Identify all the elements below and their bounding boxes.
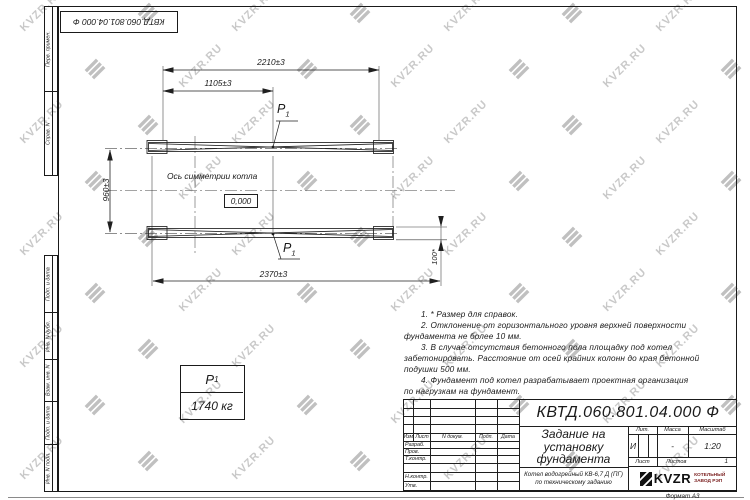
title-block-title: Задание на установку фундамента [521, 427, 626, 467]
title-block-product: Котел водогрейный КВ-6,7 Д (ПГ) по техни… [520, 468, 627, 490]
load-table-symbol: P1 [181, 367, 243, 391]
col-header-list: Лист [414, 433, 430, 441]
row-label-nkontr: Н.контр. [405, 474, 431, 480]
col-header-izm: Изм. [404, 433, 414, 441]
dim-100-label: 100* [429, 240, 439, 274]
sheets-value: 1 [724, 458, 728, 465]
mass-header: Масса [657, 426, 688, 434]
row-label-tkontr: Т.контр. [405, 456, 431, 462]
scale-header: Масштаб [688, 426, 737, 434]
title-block-doc-number: КВТД.060.801.04.000 Ф [519, 399, 737, 426]
note-item: 2. Отклонение от горизонтального уровня … [404, 320, 732, 342]
note-item: 4. Фундамент под котел разрабатывает про… [404, 375, 732, 397]
lit-value: И [628, 434, 638, 457]
notes-block: 1. * Размер для справок. 2. Отклонение о… [404, 309, 732, 397]
load-table-value: 1740 кг [181, 394, 243, 417]
format-label: Формат А3 [628, 492, 737, 500]
sheets-cell: Листов 1 [657, 457, 737, 466]
foundation-beam-top [147, 141, 394, 154]
row-label-prov: Пров. [405, 449, 431, 455]
load-point-label-bottom: P1 [283, 241, 296, 258]
dim-2210-label: 2210±3 [236, 56, 306, 67]
sheets-label: Листов [666, 459, 686, 465]
col-header-podp: Подп. [475, 433, 497, 441]
row-label-utv: Утв. [405, 483, 431, 489]
level-mark-box: 0,000 [224, 194, 258, 208]
drawing-sheet: KVZR.RUKVZR.RUKVZR.RUKVZR.RUKVZR.RUKVZR.… [0, 0, 750, 500]
axis-of-symmetry-label: Ось симметрии котла [167, 171, 277, 183]
level-mark-value: 0,000 [231, 197, 252, 206]
scale-value: 1:20 [688, 434, 737, 457]
kvzr-logo-icon [640, 472, 652, 486]
dim-960-label: 960±3 [101, 170, 111, 210]
sheet-cell: Лист [628, 457, 657, 466]
load-table: P1 1740 кг [180, 365, 245, 420]
note-item: 3. В случае отсутствия бетонного пола пл… [404, 342, 732, 375]
company-logo-text: KVZR [654, 471, 691, 486]
company-cell: KVZR КОТЕЛЬНЫЙ ЗАВОД РЭП [628, 466, 737, 491]
dim-2370-label: 2370±3 [241, 268, 306, 279]
load-point-label-top: P1 [277, 102, 290, 119]
row-label-razrab: Разраб. [405, 442, 431, 448]
lit-header: Лит. [628, 426, 657, 434]
mass-value: - [657, 434, 688, 457]
company-name: КОТЕЛЬНЫЙ ЗАВОД РЭП [694, 473, 725, 485]
row-label-empty [405, 465, 431, 471]
dim-1105-label: 1105±3 [188, 77, 248, 88]
col-header-data: Дата [497, 433, 519, 441]
foundation-beam-bottom [147, 227, 394, 240]
leader-lines [272, 121, 300, 259]
col-header-doc: N докум. [430, 433, 475, 441]
note-item: 1. * Размер для справок. [404, 309, 732, 320]
